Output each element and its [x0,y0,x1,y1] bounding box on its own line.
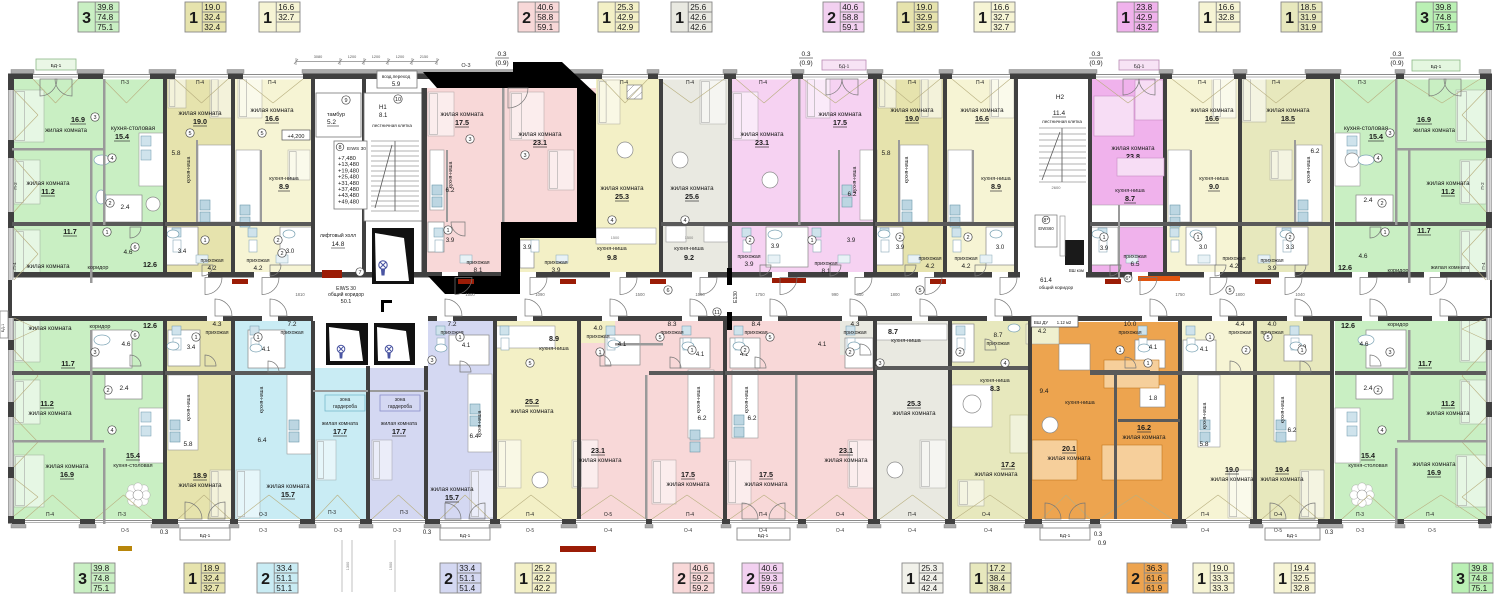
svg-text:1810: 1810 [295,292,305,297]
svg-text:11: 11 [714,310,720,316]
svg-text:жилая комната: жилая комната [510,408,554,415]
svg-text:8.7: 8.7 [888,327,898,336]
svg-text:жилая комната: жилая комната [1266,107,1310,114]
svg-text:О-3: О-3 [1356,528,1365,534]
svg-text:4.1: 4.1 [462,343,471,349]
svg-text:75.1: 75.1 [1435,23,1451,32]
svg-text:40.6: 40.6 [537,3,553,12]
svg-text:П-4: П-4 [1426,512,1434,518]
svg-text:61.6: 61.6 [1146,574,1162,583]
svg-text:кухня-ниша: кухня-ниша [904,156,910,183]
svg-text:1500: 1500 [685,236,693,240]
svg-text:1750: 1750 [755,292,765,297]
svg-text:42.9: 42.9 [617,23,633,32]
svg-text:6: 6 [666,288,669,294]
svg-text:12.6: 12.6 [143,321,157,330]
svg-text:прихожая: прихожая [814,261,837,267]
svg-text:тамбур: тамбур [327,112,345,118]
svg-text:жилая комната: жилая комната [1210,476,1254,483]
svg-text:9.8: 9.8 [607,253,617,262]
svg-text:32.8: 32.8 [1218,13,1234,22]
svg-text:1: 1 [1102,235,1105,241]
svg-text:42.6: 42.6 [690,13,706,22]
svg-text:15.4: 15.4 [1361,451,1375,460]
svg-text:1: 1 [690,348,693,354]
svg-text:3.9: 3.9 [744,261,753,268]
svg-text:3.9: 3.9 [1100,246,1109,252]
svg-text:2: 2 [1244,348,1247,354]
svg-text:1: 1 [1121,10,1130,27]
svg-text:3.9: 3.9 [896,245,905,251]
svg-text:2: 2 [746,571,755,588]
svg-text:19.0: 19.0 [193,117,207,126]
svg-text:19.4: 19.4 [1293,564,1309,573]
svg-text:3080: 3080 [314,55,322,59]
svg-text:кухня-ниша: кухня-ниша [539,346,569,352]
svg-text:4.2: 4.2 [925,263,934,270]
svg-text:1: 1 [203,238,206,244]
svg-text:прихожая: прихожая [246,258,269,264]
svg-text:прихожая: прихожая [1228,330,1251,336]
svg-text:3.9: 3.9 [771,244,780,250]
svg-text:17.5: 17.5 [681,470,695,479]
svg-text:4: 4 [110,156,113,162]
svg-text:1: 1 [1118,348,1121,354]
svg-text:6.2: 6.2 [1287,427,1296,434]
svg-text:32.7: 32.7 [278,13,294,22]
svg-text:4.6: 4.6 [1359,341,1368,348]
svg-text:3: 3 [93,350,96,356]
svg-text:58.8: 58.8 [537,13,553,22]
svg-text:31.9: 31.9 [1300,13,1316,22]
svg-text:19.0: 19.0 [916,3,932,12]
svg-text:11.2: 11.2 [41,187,55,196]
svg-text:кухня-ниша: кухня-ниша [186,394,192,421]
svg-text:1: 1 [901,10,910,27]
svg-text:О-5: О-5 [526,528,535,534]
svg-text:11.4: 11.4 [1053,110,1066,117]
svg-text:лестничная клетка: лестничная клетка [372,123,412,128]
svg-text:3: 3 [523,153,526,159]
svg-text:4.4: 4.4 [1235,321,1244,328]
svg-text:жилая комната: жилая комната [578,457,622,464]
svg-text:возд.переход: возд.переход [382,74,411,79]
svg-text:4.1: 4.1 [618,342,627,348]
svg-text:4.1: 4.1 [1200,347,1209,353]
svg-text:15.7: 15.7 [445,493,459,502]
svg-text:25.3: 25.3 [617,3,633,12]
svg-text:5: 5 [528,361,531,367]
svg-text:40.6: 40.6 [692,564,708,573]
svg-text:16.9: 16.9 [60,470,74,479]
svg-text:10.0: 10.0 [1124,321,1137,328]
svg-text:прихожая: прихожая [918,256,941,262]
svg-text:4.0: 4.0 [593,325,602,332]
svg-text:4: 4 [610,218,613,224]
svg-text:О-5: О-5 [1428,528,1437,534]
svg-text:5: 5 [260,131,263,137]
svg-text:6.2: 6.2 [697,415,706,422]
svg-text:58.8: 58.8 [842,13,858,22]
svg-text:прихожая: прихожая [954,256,977,262]
svg-text:коридор: коридор [1388,268,1409,274]
svg-text:жилая комната: жилая комната [1413,128,1455,134]
svg-text:5: 5 [658,335,661,341]
svg-text:23.8: 23.8 [1136,3,1152,12]
svg-text:16.6: 16.6 [975,114,989,123]
svg-text:7.2: 7.2 [447,321,456,328]
svg-text:1: 1 [1197,571,1206,588]
svg-text:5.8: 5.8 [183,441,192,448]
svg-text:2: 2 [966,235,969,241]
svg-text:6: 6 [133,333,136,339]
svg-text:+43,480: +43,480 [338,193,359,199]
svg-text:общий коридор: общий коридор [1039,284,1074,291]
svg-text:8.3: 8.3 [667,321,676,328]
svg-text:3.0: 3.0 [996,245,1005,251]
svg-text:жилая комната: жилая комната [1431,265,1470,271]
svg-text:59.2: 59.2 [692,584,708,593]
svg-text:0.3: 0.3 [423,530,432,536]
svg-text:8.7: 8.7 [993,332,1002,339]
svg-text:4.6: 4.6 [123,249,132,256]
svg-text:кухня-ниша: кухня-ниша [448,161,454,188]
svg-text:4.3: 4.3 [850,321,859,328]
svg-text:11.2: 11.2 [40,399,54,408]
svg-text:О-3: О-3 [393,528,402,534]
svg-text:16.6: 16.6 [1218,3,1234,12]
svg-text:3.9: 3.9 [847,238,856,244]
svg-text:жилая комната: жилая комната [28,325,72,332]
svg-text:8.1: 8.1 [473,267,482,274]
svg-text:О-4: О-4 [908,528,917,534]
svg-text:+49,480: +49,480 [338,199,359,205]
svg-text:16.6: 16.6 [278,3,294,12]
svg-text:БД-1: БД-1 [1431,64,1442,70]
svg-text:990: 990 [832,292,840,297]
svg-text:32.9: 32.9 [916,13,932,22]
svg-text:П-4: П-4 [759,80,767,86]
svg-text:11.7: 11.7 [63,227,77,236]
svg-text:БД-1: БД-1 [200,533,211,539]
svg-text:2: 2 [522,10,531,27]
svg-text:25.2: 25.2 [534,564,550,573]
svg-text:2: 2 [748,238,751,244]
svg-text:коридор: коридор [88,265,109,271]
svg-text:О-4: О-4 [759,528,768,534]
svg-text:жилая комната: жилая комната [178,110,222,117]
svg-text:2: 2 [280,251,283,257]
svg-text:1: 1 [519,571,528,588]
svg-text:11.2: 11.2 [1441,399,1455,408]
svg-text:жилая комната: жилая комната [1047,455,1091,462]
svg-text:25.3: 25.3 [921,564,937,573]
svg-text:32.5: 32.5 [1293,574,1309,583]
svg-text:16.9: 16.9 [1417,115,1431,124]
svg-text:жилая комната: жилая комната [1111,145,1155,152]
svg-text:3.0: 3.0 [286,249,295,255]
svg-text:6.4: 6.4 [257,437,266,444]
svg-text:3: 3 [93,115,96,121]
svg-text:жилая комната: жилая комната [28,410,72,417]
svg-text:жилая комната: жилая комната [440,111,484,118]
svg-text:40.6: 40.6 [761,564,777,573]
svg-text:П-4: П-4 [12,262,17,270]
svg-text:общий коридор: общий коридор [328,291,364,298]
svg-text:1: 1 [256,335,259,341]
svg-text:2: 2 [898,235,901,241]
svg-text:прихожая: прихожая [200,258,223,264]
svg-text:8.9: 8.9 [279,182,289,191]
svg-text:2: 2 [1376,388,1379,394]
svg-text:жилая комната: жилая комната [740,131,784,138]
svg-text:+31,480: +31,480 [338,181,359,187]
svg-text:жилая комната: жилая комната [1122,434,1166,441]
svg-text:П-4: П-4 [686,512,694,518]
svg-text:18.9: 18.9 [203,564,219,573]
svg-text:5.8: 5.8 [171,150,180,157]
svg-text:5: 5 [1228,288,1231,294]
svg-text:E130: E130 [733,291,739,303]
svg-text:17.5: 17.5 [759,470,773,479]
svg-text:42.6: 42.6 [690,23,706,32]
svg-text:4: 4 [110,428,113,434]
svg-text:4.3: 4.3 [212,321,221,328]
svg-text:3.9: 3.9 [446,238,455,244]
svg-text:кухня-ниша: кухня-ниша [597,246,627,252]
svg-text:5: 5 [918,288,921,294]
svg-text:0.3: 0.3 [160,530,169,536]
svg-text:1: 1 [105,230,108,236]
svg-text:1: 1 [1196,235,1199,241]
svg-text:11.7: 11.7 [1418,359,1432,368]
svg-text:36.3: 36.3 [1146,564,1162,573]
svg-text:20.1: 20.1 [1062,444,1076,453]
svg-text:кухня-ниша: кухня-ниша [186,156,192,183]
svg-text:23.1: 23.1 [755,138,769,147]
svg-text:жилая комната: жилая комната [960,107,1004,114]
svg-text:1: 1 [1278,571,1287,588]
svg-text:25.3: 25.3 [907,399,921,408]
svg-text:19.0: 19.0 [1212,564,1228,573]
svg-text:16.6: 16.6 [265,114,279,123]
svg-text:75.1: 75.1 [1471,584,1487,593]
svg-text:25.6: 25.6 [690,3,706,12]
svg-text:1500: 1500 [465,292,475,297]
svg-text:8: 8 [338,145,341,151]
svg-text:9.0: 9.0 [1209,182,1219,191]
svg-text:П-4: П-4 [908,80,916,86]
svg-text:БД-1: БД-1 [1287,533,1298,539]
svg-text:прихожая: прихожая [744,330,767,336]
svg-text:1: 1 [1146,361,1149,367]
svg-text:1: 1 [189,10,198,27]
svg-text:прихожая: прихожая [986,341,1009,347]
svg-text:жилая комната: жилая комната [430,486,474,493]
svg-text:3: 3 [1456,571,1465,588]
svg-text:БД-1: БД-1 [839,64,850,70]
svg-text:17.2: 17.2 [989,564,1005,573]
svg-text:(0.9): (0.9) [1390,60,1403,67]
svg-text:4.2: 4.2 [1038,329,1047,335]
svg-text:50.1: 50.1 [341,299,352,305]
svg-text:1: 1 [1285,10,1294,27]
svg-text:О-3: О-3 [259,528,268,534]
svg-text:О-4: О-4 [836,512,845,518]
svg-text:59.6: 59.6 [761,584,777,593]
svg-text:жилая комната: жилая комната [45,128,87,134]
svg-text:5.2: 5.2 [327,119,336,126]
svg-text:3: 3 [1388,350,1391,356]
svg-text:1900: 1900 [389,562,393,570]
svg-text:8.7: 8.7 [1125,194,1135,203]
svg-text:59.3: 59.3 [761,574,777,583]
svg-text:П-2: П-2 [1480,182,1485,190]
svg-text:39.8: 39.8 [1471,564,1487,573]
svg-text:3.4: 3.4 [178,249,187,255]
svg-text:прихожая: прихожая [466,260,489,266]
svg-text:О-3: О-3 [334,528,343,534]
svg-text:жилая комната: жилая комната [26,180,70,187]
svg-text:+13,480: +13,480 [338,162,359,168]
svg-text:17.7: 17.7 [333,427,347,436]
svg-text:4.2: 4.2 [961,263,970,270]
svg-text:4: 4 [683,218,686,224]
svg-text:3: 3 [78,571,87,588]
svg-text:4.6: 4.6 [121,341,130,348]
svg-text:О-4: О-4 [1201,528,1210,534]
svg-text:25.2: 25.2 [525,397,539,406]
svg-text:2: 2 [106,388,109,394]
svg-text:1: 1 [263,10,272,27]
svg-text:3.3: 3.3 [1286,245,1295,251]
svg-text:1: 1 [1208,335,1211,341]
svg-text:32.7: 32.7 [993,23,1009,32]
svg-text:1: 1 [446,228,449,234]
svg-text:3: 3 [878,361,881,367]
svg-text:39.8: 39.8 [1435,3,1451,12]
svg-text:О-4: О-4 [1274,512,1283,518]
svg-text:74.8: 74.8 [93,574,109,583]
svg-text:23.1: 23.1 [533,138,547,147]
svg-text:жилая комната: жилая комната [818,111,862,118]
svg-text:жилая комната: жилая комната [26,263,70,270]
svg-text:кухня-столовая: кухня-столовая [111,125,155,132]
svg-text:1: 1 [675,10,684,27]
svg-text:0.9: 0.9 [1098,541,1107,547]
svg-text:2150: 2150 [420,55,428,59]
svg-text:П-3: П-3 [1356,512,1364,518]
svg-text:кухня-столовая: кухня-столовая [1344,125,1388,132]
svg-text:О-5: О-5 [1274,528,1283,534]
svg-text:42.4: 42.4 [921,574,937,583]
svg-text:4: 4 [1380,428,1383,434]
svg-text:42.9: 42.9 [617,13,633,22]
svg-text:2.4: 2.4 [120,204,129,211]
svg-text:П-4: П-4 [1481,262,1486,270]
svg-text:74.8: 74.8 [97,13,113,22]
svg-text:О-3: О-3 [259,512,268,518]
svg-text:4: 4 [1376,156,1379,162]
svg-text:4: 4 [1003,361,1006,367]
svg-text:2: 2 [444,571,453,588]
svg-text:38.4: 38.4 [989,574,1005,583]
svg-text:6.2: 6.2 [1310,148,1319,155]
svg-text:16.2: 16.2 [1137,423,1151,432]
svg-text:О-5: О-5 [604,512,613,518]
svg-text:17.7: 17.7 [392,427,406,436]
svg-text:EIWS60: EIWS60 [1038,226,1054,231]
svg-text:8*: 8* [1043,218,1049,224]
svg-text:5.9: 5.9 [392,82,401,88]
svg-text:6.5: 6.5 [1130,261,1139,268]
svg-text:П-4: П-4 [1198,80,1206,86]
svg-text:прихожая: прихожая [586,334,609,340]
svg-text:2.4: 2.4 [1363,385,1372,392]
svg-text:2: 2 [958,350,961,356]
svg-text:зона: зона [395,397,406,403]
svg-text:кухня-ниша: кухня-ниша [852,166,858,193]
svg-text:9: 9 [344,98,347,104]
svg-text:5: 5 [768,335,771,341]
svg-text:42.2: 42.2 [534,584,550,593]
svg-text:прихожая: прихожая [1118,330,1141,336]
svg-text:17.2: 17.2 [1001,460,1015,469]
svg-text:75.1: 75.1 [93,584,109,593]
svg-text:6.2: 6.2 [847,191,856,198]
svg-text:61.9: 61.9 [1146,584,1162,593]
svg-text:+4,200: +4,200 [288,134,305,140]
svg-text:3.0: 3.0 [1199,245,1208,251]
svg-text:25.6: 25.6 [685,192,699,201]
svg-text:1: 1 [602,10,611,27]
svg-text:40.6: 40.6 [842,3,858,12]
svg-text:3.9: 3.9 [551,267,560,274]
svg-text:6*: 6* [1125,276,1131,282]
svg-text:П-4: П-4 [268,80,276,86]
svg-text:7.2: 7.2 [287,321,296,328]
svg-text:16.6: 16.6 [1205,114,1219,123]
svg-text:0.3: 0.3 [801,51,810,58]
svg-text:51.1: 51.1 [276,584,292,593]
svg-text:2: 2 [743,348,746,354]
svg-text:2: 2 [108,201,111,207]
svg-text:18.5: 18.5 [1300,3,1316,12]
svg-text:3: 3 [82,10,91,27]
svg-text:кухня-ниша: кухня-ниша [744,386,750,413]
svg-text:31.9: 31.9 [1300,23,1316,32]
svg-text:15.4: 15.4 [1369,132,1383,141]
svg-text:1: 1 [906,571,915,588]
svg-text:7: 7 [358,270,361,276]
svg-text:3: 3 [1388,131,1391,137]
svg-text:42.4: 42.4 [921,584,937,593]
svg-text:74.8: 74.8 [1471,574,1487,583]
svg-text:18.9: 18.9 [193,471,207,480]
svg-text:кухня-ниша: кухня-ниша [674,246,704,252]
svg-text:П-4: П-4 [686,80,694,86]
svg-text:5: 5 [188,131,191,137]
svg-text:О-4: О-4 [684,528,693,534]
svg-text:лифтовый холл: лифтовый холл [320,232,356,239]
svg-text:коридор: коридор [1388,322,1409,328]
svg-text:кухня-столовая: кухня-столовая [113,463,152,469]
svg-text:8.1: 8.1 [821,268,830,275]
svg-text:16.6: 16.6 [993,3,1009,12]
svg-text:О-3: О-3 [461,63,470,69]
svg-text:1800: 1800 [890,292,900,297]
svg-text:51.1: 51.1 [459,574,475,583]
